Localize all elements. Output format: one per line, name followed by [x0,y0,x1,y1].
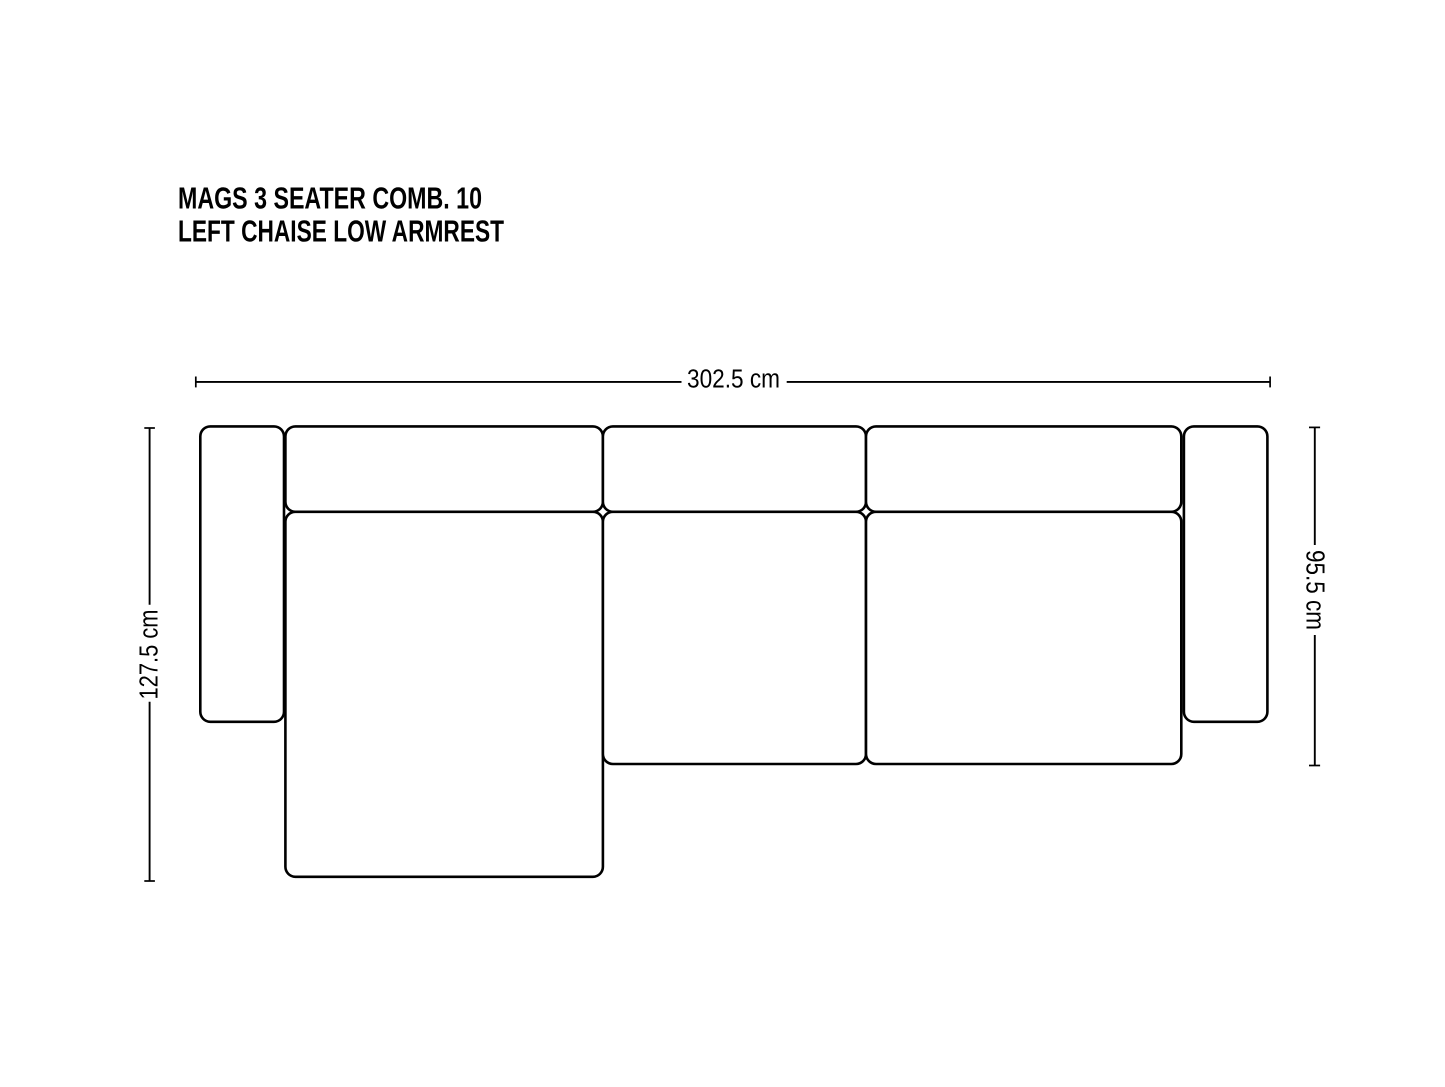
svg-text:127.5 cm: 127.5 cm [135,610,163,700]
svg-text:LEFT CHAISE LOW ARMREST: LEFT CHAISE LOW ARMREST [178,214,504,249]
svg-text:MAGS 3 SEATER COMB. 10: MAGS 3 SEATER COMB. 10 [178,181,482,216]
svg-text:95.5 cm: 95.5 cm [1300,550,1328,630]
svg-text:302.5 cm: 302.5 cm [687,366,780,394]
